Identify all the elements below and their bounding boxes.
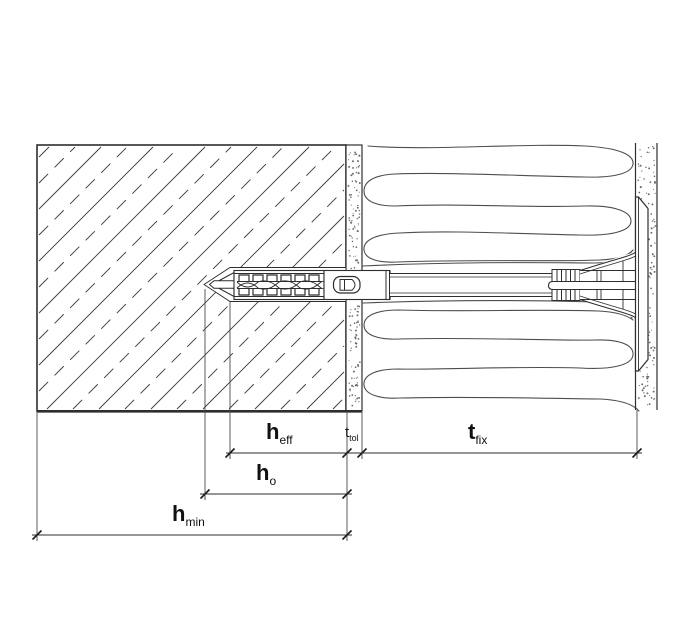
extension-lines [37,410,637,541]
dim-label-t-fix: tfix [468,421,487,446]
dimensioning [32,410,642,541]
dim-label-h-min: hmin [172,503,205,528]
technical-drawing-canvas [0,0,700,630]
dim-label-h-min-symbol: h [172,501,185,526]
dim-label-h-eff-subscript: eff [279,433,292,447]
anchor-plate [636,197,649,371]
dim-label-h-o-symbol: h [256,460,269,485]
insulation-wool-upper [364,145,633,262]
anchor-installation-diagram: heff ttol tfix ho hmin [0,0,700,630]
dim-label-t-fix-subscript: fix [475,433,487,447]
dim-label-h-min-subscript: min [185,515,204,529]
dim-label-h-o-subscript: o [269,474,276,488]
dim-label-h-eff-symbol: h [266,419,279,444]
anchor-pin [549,282,637,290]
anchor-shaft [390,274,552,297]
insulation-wool-lower [364,310,639,411]
dim-label-t-tol-subscript: tol [349,433,359,443]
insulation-squeeze-top [363,251,632,266]
dim-label-h-eff: heff [266,421,293,446]
anchor-collar [324,271,390,300]
dim-label-h-o: ho [256,462,276,487]
dim-label-t-tol: ttol [345,425,359,443]
dimension-lines [32,453,642,535]
